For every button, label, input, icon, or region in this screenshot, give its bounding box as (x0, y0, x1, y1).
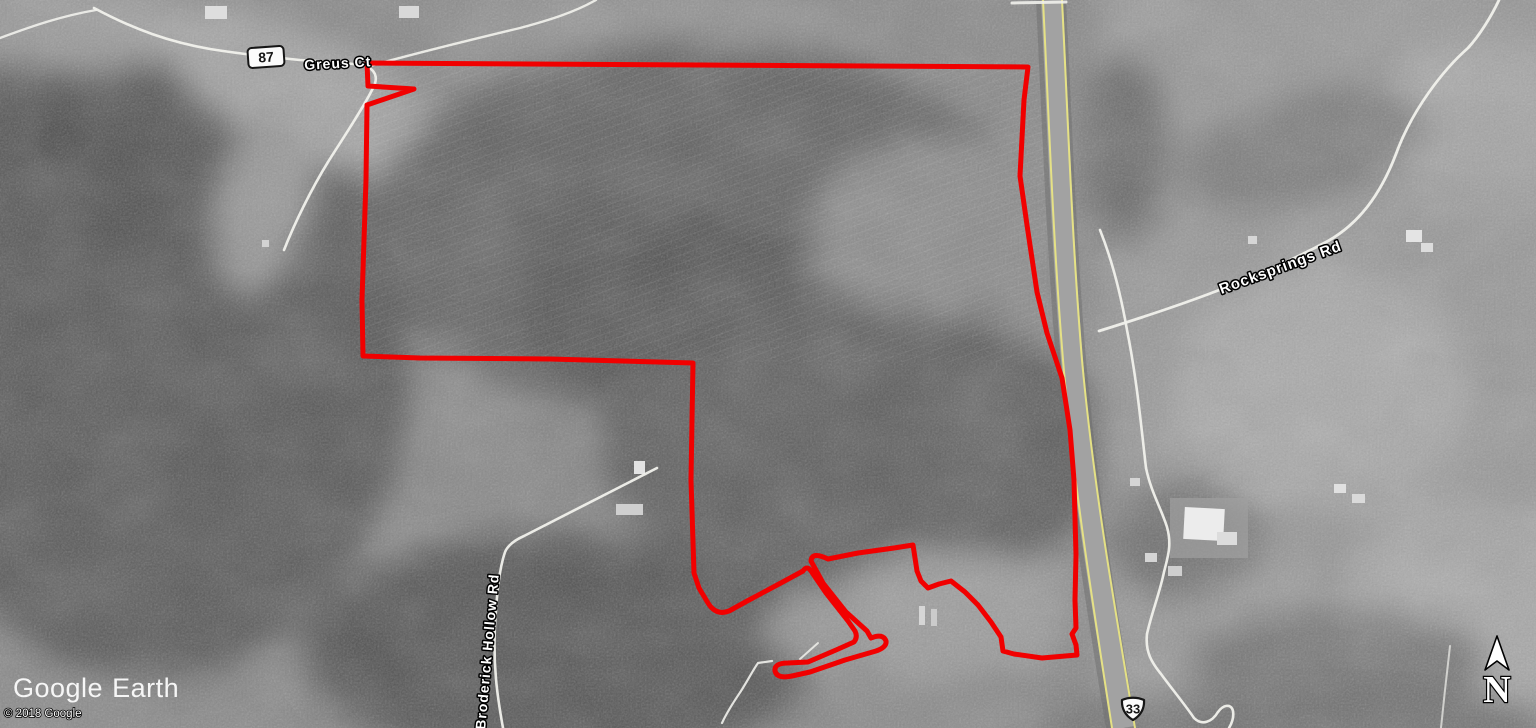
google-earth-logo: GoogleEarth (13, 673, 179, 703)
route-87-shield: 87 (247, 46, 284, 68)
logo-google: Google (13, 673, 103, 703)
forest-striping (356, 62, 1046, 362)
route-87-number: 87 (258, 48, 275, 65)
overpass-road (1012, 2, 1066, 3)
google-earth-map-canvas[interactable]: 87 33 Greus Ct Rocksprings Rd Broderick … (0, 0, 1536, 728)
aerial-imagery: 87 33 Greus Ct Rocksprings Rd Broderick … (0, 0, 1536, 728)
route-33-number: 33 (1126, 702, 1140, 717)
copyright-text: © 2018 Google (4, 708, 82, 720)
north-arrow-letter: N (1483, 669, 1510, 711)
logo-earth: Earth (112, 673, 179, 703)
